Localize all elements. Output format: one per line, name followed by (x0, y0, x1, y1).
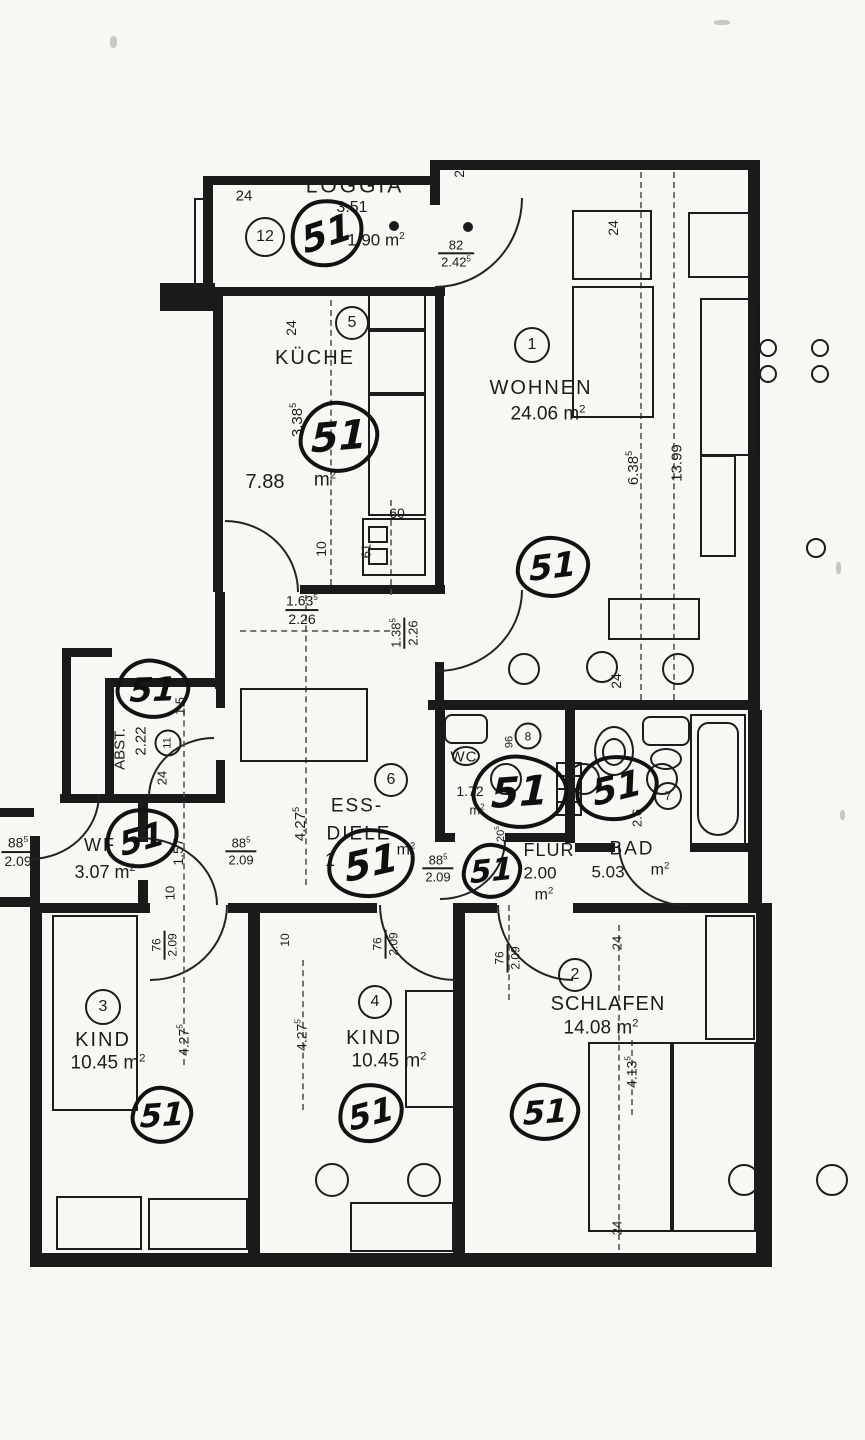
photocopy-speck (840, 810, 845, 820)
room-number-circle: 1 (514, 327, 550, 363)
wall (62, 650, 71, 798)
room-number-circle: 3 (85, 989, 121, 1025)
dimension-label: 24 (156, 771, 169, 785)
furniture-rect (368, 330, 426, 394)
furniture-rect (608, 598, 700, 640)
furniture-rect (368, 293, 426, 330)
wall (748, 710, 762, 905)
door-swing-arc (225, 520, 299, 592)
wall (248, 903, 260, 1265)
dimension-label: 4.275 (176, 1024, 191, 1056)
dimension-label: WC (451, 750, 478, 765)
furniture-rect (350, 1202, 454, 1252)
dimension-line (240, 630, 390, 632)
dimension-label: m2 (314, 470, 336, 489)
dimension-label: KIND (346, 1028, 402, 1048)
furniture-circle (728, 1164, 760, 1196)
handwritten-51-mark: 51 (336, 1080, 407, 1146)
furniture-circle (508, 653, 540, 685)
room-number-circle: 8 (515, 723, 542, 750)
dimension-label: BAD (609, 840, 654, 859)
furniture-rect (240, 688, 368, 762)
wall (0, 808, 34, 817)
furniture-rect (700, 298, 754, 456)
dimension-label: 5.03 (591, 864, 624, 881)
dimension-label: KIND (75, 1030, 131, 1050)
wall (0, 897, 34, 907)
furniture-rect (672, 1042, 756, 1232)
dimension-fraction: 762.09 (372, 929, 401, 958)
dimension-label: FLUR (523, 841, 574, 859)
wall (215, 592, 225, 689)
dimension-label: 10 (314, 541, 328, 557)
dimension-label: WOHNEN (489, 378, 592, 398)
dimension-label: m2 (535, 886, 554, 903)
dimension-label: 96 (505, 736, 516, 748)
toilet-tank (642, 716, 690, 746)
furniture-rect (368, 526, 388, 543)
furniture-circle (315, 1163, 349, 1197)
dimension-fraction: 8852.09 (1, 835, 34, 869)
dimension-label: ESS- (331, 797, 383, 816)
photocopy-speck (110, 36, 117, 48)
dimension-fraction: 1.6352.26 (285, 593, 318, 627)
wall (30, 1253, 772, 1267)
dimension-label: 60 (389, 506, 405, 520)
dimension-label: LOGGIA (306, 176, 405, 197)
dimension-label: 25 (452, 162, 466, 178)
room-number-circle: 5 (335, 306, 369, 340)
handwritten-51-mark: 51 (514, 534, 591, 600)
dimension-label: 4.275 (292, 807, 308, 841)
furniture-circle (389, 221, 399, 231)
wall (756, 903, 772, 1255)
furniture-rect (405, 990, 457, 1108)
furniture-circle (806, 538, 826, 558)
dimension-label: 13.99 (670, 444, 685, 482)
furniture-circle (662, 653, 694, 685)
dimension-label: SCHLAFEN (551, 994, 666, 1014)
wall (30, 903, 150, 913)
pillar (194, 198, 212, 288)
photocopy-speck (836, 562, 841, 574)
dimension-label: 24 (284, 320, 298, 336)
furniture-circle (759, 365, 777, 383)
furniture-rect (688, 212, 750, 278)
dimension-label: m2 (651, 861, 670, 878)
dimension-label: 24 (609, 673, 623, 689)
room-number-circle: 4 (358, 985, 392, 1019)
furniture-rect (56, 1196, 142, 1250)
furniture-rect (705, 915, 755, 1040)
dimension-fraction: 8852.09 (422, 853, 453, 884)
furniture-rect (148, 1198, 248, 1250)
dimension-fraction: 762.09 (494, 943, 523, 972)
dimension-label: ABST. (113, 728, 128, 770)
dimension-label: 24 (606, 220, 620, 236)
furniture-circle (811, 339, 829, 357)
furniture-circle (759, 339, 777, 357)
dimension-label: 7.88 (246, 472, 285, 492)
furniture-rect (700, 455, 736, 557)
dimension-label: 24 (236, 189, 253, 204)
dimension-fraction: 822.425 (438, 238, 474, 269)
room-number-circle: 12 (245, 217, 285, 257)
dimension-label: 4.275 (294, 1019, 309, 1051)
dimension-label: 10.45 m2 (71, 1053, 146, 1072)
wall (30, 903, 42, 1265)
furniture-circle (407, 1163, 441, 1197)
dimension-label: 24 (611, 936, 624, 950)
bathtub-inner (697, 722, 739, 836)
dimension-fraction: 762.09 (151, 930, 180, 959)
room-number-circle: 11 (155, 730, 182, 757)
dimension-label: 14.08 m2 (564, 1018, 639, 1037)
wall (216, 678, 225, 708)
dimension-label: 24 (611, 1221, 624, 1235)
dimension-label: 6.385 (625, 451, 641, 485)
furniture-circle (811, 365, 829, 383)
furniture-circle (463, 222, 473, 232)
dimension-label: 2.00 (523, 865, 556, 882)
handwritten-51-mark: 51 (508, 1080, 583, 1144)
wall (430, 160, 757, 170)
dimension-fraction: 8852.09 (225, 836, 256, 867)
wall (435, 287, 444, 587)
furniture-rect (368, 394, 426, 516)
dimension-fraction: 1.3852.26 (389, 617, 420, 648)
toilet-bowl (650, 748, 682, 770)
dimension-label: 4.135 (624, 1056, 639, 1088)
wall (300, 585, 445, 594)
floor-plan: LOGGIA3.511.90 m2122425822.425KÜCHE5243.… (0, 0, 865, 1440)
room-number-circle: 6 (374, 763, 408, 797)
dimension-label: 2.22 (134, 726, 149, 755)
wall (216, 760, 225, 803)
dimension-label: 24.06 m2 (511, 404, 586, 423)
furniture-circle (816, 1164, 848, 1196)
dimension-label: KÜCHE (275, 348, 355, 368)
dimension-label: 10 (279, 933, 291, 946)
dimension-label: 61 (360, 544, 373, 558)
photocopy-speck (714, 20, 730, 25)
room-number-circle: 2 (558, 958, 592, 992)
wc-tank (444, 714, 488, 744)
wall (428, 700, 760, 710)
dimension-label: 205 (495, 826, 507, 842)
dimension-line (183, 700, 185, 900)
handwritten-51-mark: 51 (128, 1083, 196, 1147)
dimension-label: 10 (164, 886, 177, 900)
wall (213, 287, 223, 592)
dimension-label: 10.45 m2 (352, 1051, 427, 1070)
